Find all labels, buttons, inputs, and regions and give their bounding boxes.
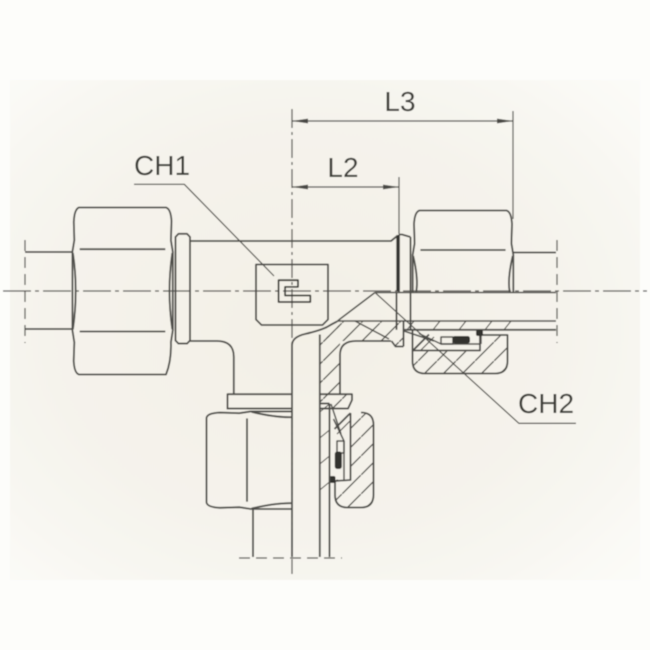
svg-text:CH1: CH1 — [134, 150, 190, 181]
svg-text:CH2: CH2 — [518, 388, 574, 419]
svg-text:L2: L2 — [327, 152, 358, 183]
svg-text:L3: L3 — [384, 86, 415, 117]
